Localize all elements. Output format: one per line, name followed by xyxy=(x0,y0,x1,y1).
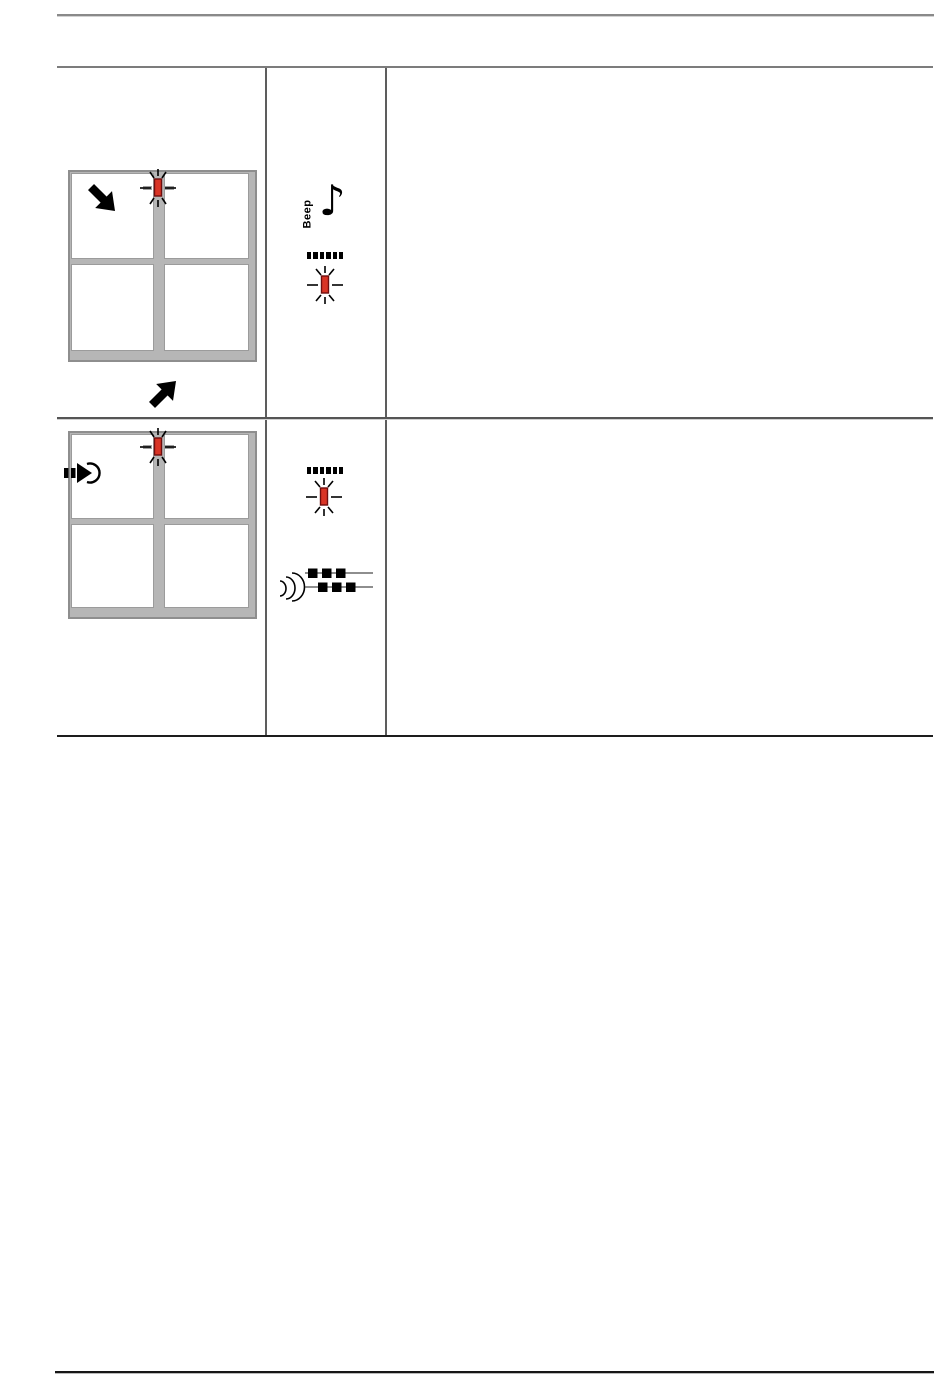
document-feed-handset-icon xyxy=(64,460,104,486)
blinking-led-icon xyxy=(138,166,178,212)
device-panel xyxy=(164,524,249,608)
distinctive-ring-pattern-icon xyxy=(277,566,373,604)
display-dashes-icon xyxy=(307,252,343,259)
manual-page: Beep ♪ xyxy=(0,0,950,1397)
arrow-under-device-icon xyxy=(143,372,185,414)
device-panel xyxy=(164,264,249,351)
description-cell-row1 xyxy=(389,72,929,413)
display-dashes-icon xyxy=(307,467,343,474)
music-note-icon: ♪ xyxy=(319,180,346,222)
blinking-red-led-icon xyxy=(305,263,345,309)
column-divider-2 xyxy=(385,68,387,735)
troubleshooting-table: Beep ♪ xyxy=(57,66,933,737)
row-divider xyxy=(57,417,933,419)
description-cell-row2 xyxy=(389,421,929,731)
page-top-rule xyxy=(57,14,934,16)
device-diagram-row1 xyxy=(68,170,257,362)
blinking-red-led-icon xyxy=(304,475,344,521)
blinking-led-icon xyxy=(138,425,178,471)
device-diagram-row2 xyxy=(68,431,257,619)
device-panel xyxy=(71,524,154,608)
column-divider-1 xyxy=(265,68,267,735)
page-bottom-rule xyxy=(55,1371,934,1373)
beep-note-icon: Beep ♪ xyxy=(297,194,353,240)
beep-label: Beep xyxy=(301,200,313,229)
device-panel xyxy=(71,264,154,351)
